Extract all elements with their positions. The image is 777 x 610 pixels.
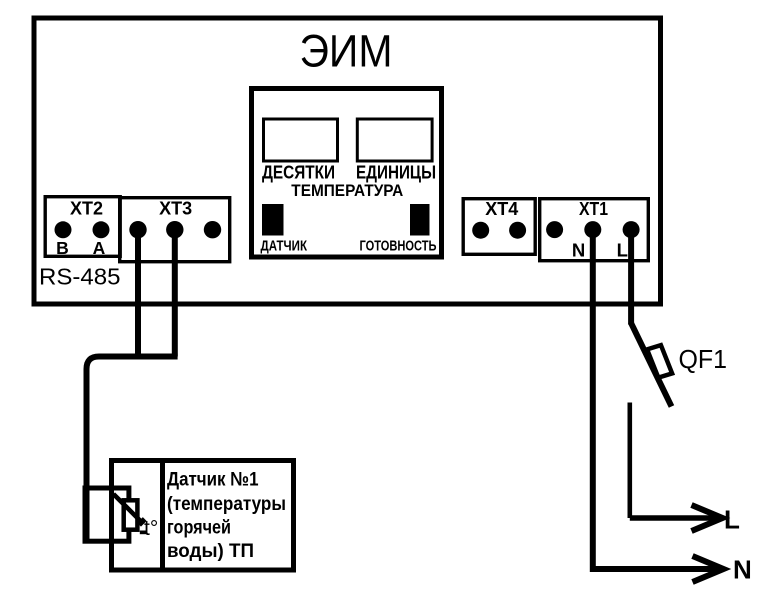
svg-text:B: B [56, 238, 69, 258]
svg-text:XT4: XT4 [485, 199, 518, 219]
svg-text:N: N [572, 240, 585, 261]
svg-text:ДЕСЯТКИ: ДЕСЯТКИ [262, 163, 335, 183]
svg-text:воды) ТП: воды) ТП [167, 540, 254, 562]
svg-text:ДАТЧИК: ДАТЧИК [261, 239, 308, 255]
svg-text:L: L [617, 240, 628, 261]
svg-text:L: L [724, 505, 740, 535]
svg-text:XT1: XT1 [579, 199, 608, 219]
svg-text:XT3: XT3 [159, 198, 192, 218]
svg-text:RS-485: RS-485 [39, 264, 121, 290]
svg-text:Датчик №1: Датчик №1 [167, 469, 259, 491]
svg-text:A: A [93, 238, 106, 258]
svg-text:ТЕМПЕРАТУРА: ТЕМПЕРАТУРА [291, 181, 403, 200]
svg-text:QF1: QF1 [679, 344, 728, 374]
svg-text:ЭИМ: ЭИМ [300, 26, 393, 77]
svg-text:горячей: горячей [167, 517, 231, 539]
svg-text:(температуры: (температуры [167, 493, 286, 515]
svg-text:ЕДИНИЦЫ: ЕДИНИЦЫ [356, 163, 436, 183]
svg-text:N: N [733, 555, 752, 585]
svg-text:ГОТОВНОСТЬ: ГОТОВНОСТЬ [360, 239, 437, 255]
svg-text:XT2: XT2 [70, 199, 103, 219]
svg-text:t°: t° [144, 517, 158, 540]
